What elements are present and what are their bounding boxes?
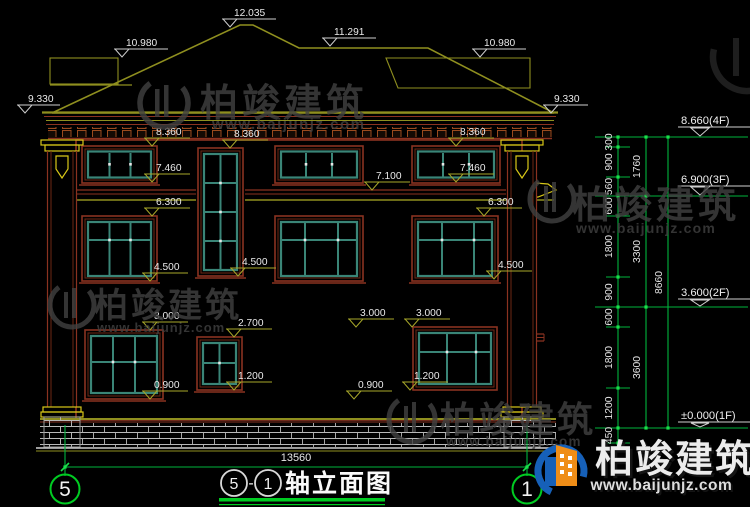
marker-eave-left: 9.330	[17, 94, 60, 113]
dim-segment: 900	[604, 153, 615, 170]
marker-label: 11.291	[334, 27, 365, 38]
marker-label: 6.300	[156, 197, 182, 208]
level-label: 3.600(2F)	[681, 287, 730, 299]
dim-segment: 1200	[604, 396, 615, 419]
right-roof-band	[386, 58, 530, 88]
marker-label: 10.980	[484, 38, 515, 49]
window-2f-mid	[272, 216, 366, 283]
dim-floor: 3600	[632, 356, 643, 379]
window-staircase	[195, 148, 246, 278]
watermark-url: www.baijunjz.com	[575, 220, 716, 236]
marker-roof-right: 10.980	[472, 38, 526, 57]
left-pilaster	[41, 140, 83, 447]
dim-segment: 1800	[604, 346, 615, 369]
logo-building-orange-icon	[556, 445, 577, 486]
brand-url: www.baijunjz.com	[590, 477, 733, 494]
title-axis-end: 1	[264, 476, 273, 493]
level-triangle-icon	[365, 182, 379, 190]
drawing-svg: 12.035 10.980 11.291 10.980 9.330 9.330 …	[0, 0, 750, 507]
watermark-url: www.baijunjz.com	[96, 320, 225, 335]
dim-floor: 3300	[632, 240, 643, 263]
cad-elevation-drawing: 12.035 10.980 11.291 10.980 9.330 9.330 …	[0, 0, 750, 507]
level-triangle-icon	[473, 49, 487, 57]
window-3f-left	[79, 146, 160, 185]
marker-peak: 12.035	[222, 8, 276, 27]
marker-label: 8.360	[460, 127, 486, 138]
watermark-top-center: 柏竣建筑 www.baijunjz.com	[130, 69, 368, 137]
level-triangle-icon	[227, 329, 241, 337]
marker-label: 7.100	[376, 171, 402, 182]
dim-segment: 300	[604, 133, 615, 150]
dim-segment: 1800	[604, 235, 615, 258]
dim-total-width: 13560	[281, 452, 312, 464]
marker-label: 9.330	[28, 94, 54, 105]
marker-label: 10.980	[126, 38, 157, 49]
marker-7100: 7.100	[364, 171, 410, 190]
window-3f-right	[409, 146, 501, 185]
brand-name: 柏竣建筑	[595, 439, 750, 481]
marker-7460-right: 7.460	[448, 163, 494, 182]
dim-floor: 1760	[632, 155, 643, 178]
axis-number: 1	[521, 478, 533, 501]
floor-level-4f: 8.660(4F)	[678, 115, 750, 136]
title-text: 轴立面图	[285, 469, 393, 498]
title-axis-start: 5	[230, 476, 239, 493]
level-triangle-icon	[18, 105, 32, 113]
level-triangle-icon	[323, 38, 337, 46]
level-triangle-icon	[347, 391, 361, 399]
marker-label: 7.460	[460, 163, 486, 174]
level-triangle-icon	[349, 319, 363, 327]
level-triangle-icon	[223, 140, 237, 148]
brand-logo: 柏竣建筑 柏竣建筑 www.baijunjz.com www.baijunjz.…	[530, 439, 750, 502]
pilaster-base	[44, 417, 80, 447]
axis-bubble-5: 5	[51, 475, 80, 504]
level-triangle-icon	[477, 208, 491, 216]
marker-label: 1.200	[238, 371, 264, 382]
marker-label: 7.460	[156, 163, 182, 174]
marker-label: 12.035	[234, 8, 265, 19]
title-separator: -	[248, 475, 253, 492]
marker-label: 0.900	[154, 380, 180, 391]
marker-roof-left: 10.980	[114, 38, 168, 57]
level-label: 8.660(4F)	[681, 115, 730, 127]
window-1f-mid	[194, 337, 245, 392]
marker-label: 1.200	[414, 371, 440, 382]
marker-roof-upper-right: 11.291	[322, 27, 376, 46]
watermark-url: www.baijunjz.com	[211, 116, 365, 133]
watermark-logo-icon	[701, 11, 750, 104]
dim-total-height: 8660	[654, 271, 665, 294]
marker-label: 6.300	[488, 197, 514, 208]
wall-outline	[76, 140, 522, 420]
window-3f-mid	[272, 146, 366, 185]
marker-label: 3.000	[416, 308, 442, 319]
marker-label: 4.500	[242, 257, 268, 268]
logo-building-blue-icon	[545, 457, 556, 486]
marker-label: 4.500	[154, 262, 180, 273]
level-label: ±0.000(1F)	[681, 410, 736, 422]
dim-segment: 600	[604, 308, 615, 325]
level-triangle-icon	[145, 208, 159, 216]
floor-level-1f: ±0.000(1F)	[678, 410, 750, 427]
axis-number: 5	[59, 478, 71, 501]
drawing-title: 5 - 1 轴立面图	[219, 469, 393, 505]
marker-0900-mid: 0.900	[346, 380, 392, 399]
floor-level-2f: 3.600(2F)	[678, 287, 750, 306]
marker-label: 4.500	[498, 260, 524, 271]
marker-label: 9.330	[554, 94, 580, 105]
title-underline-thin	[219, 504, 385, 505]
marker-3000-mid: 3.000	[348, 308, 394, 327]
watermark-top-right-fragment	[701, 11, 750, 104]
marker-label: 0.900	[358, 380, 384, 391]
title-underline	[219, 498, 385, 502]
watermark-bottom-center: 柏竣建筑 www.baijunjz.com	[380, 387, 596, 452]
level-triangle-icon	[691, 300, 709, 306]
dim-segment: 900	[604, 283, 615, 300]
window-2f-right	[409, 216, 501, 283]
level-triangle-icon	[115, 49, 129, 57]
marker-label: 3.000	[360, 308, 386, 319]
level-triangle-icon	[405, 319, 419, 327]
left-roof-band	[50, 58, 118, 84]
level-triangle-icon	[223, 19, 237, 27]
level-triangle-icon	[691, 423, 709, 427]
level-triangle-icon	[403, 382, 417, 390]
marker-3000-right: 3.000	[404, 308, 450, 327]
level-triangle-icon	[691, 128, 709, 136]
